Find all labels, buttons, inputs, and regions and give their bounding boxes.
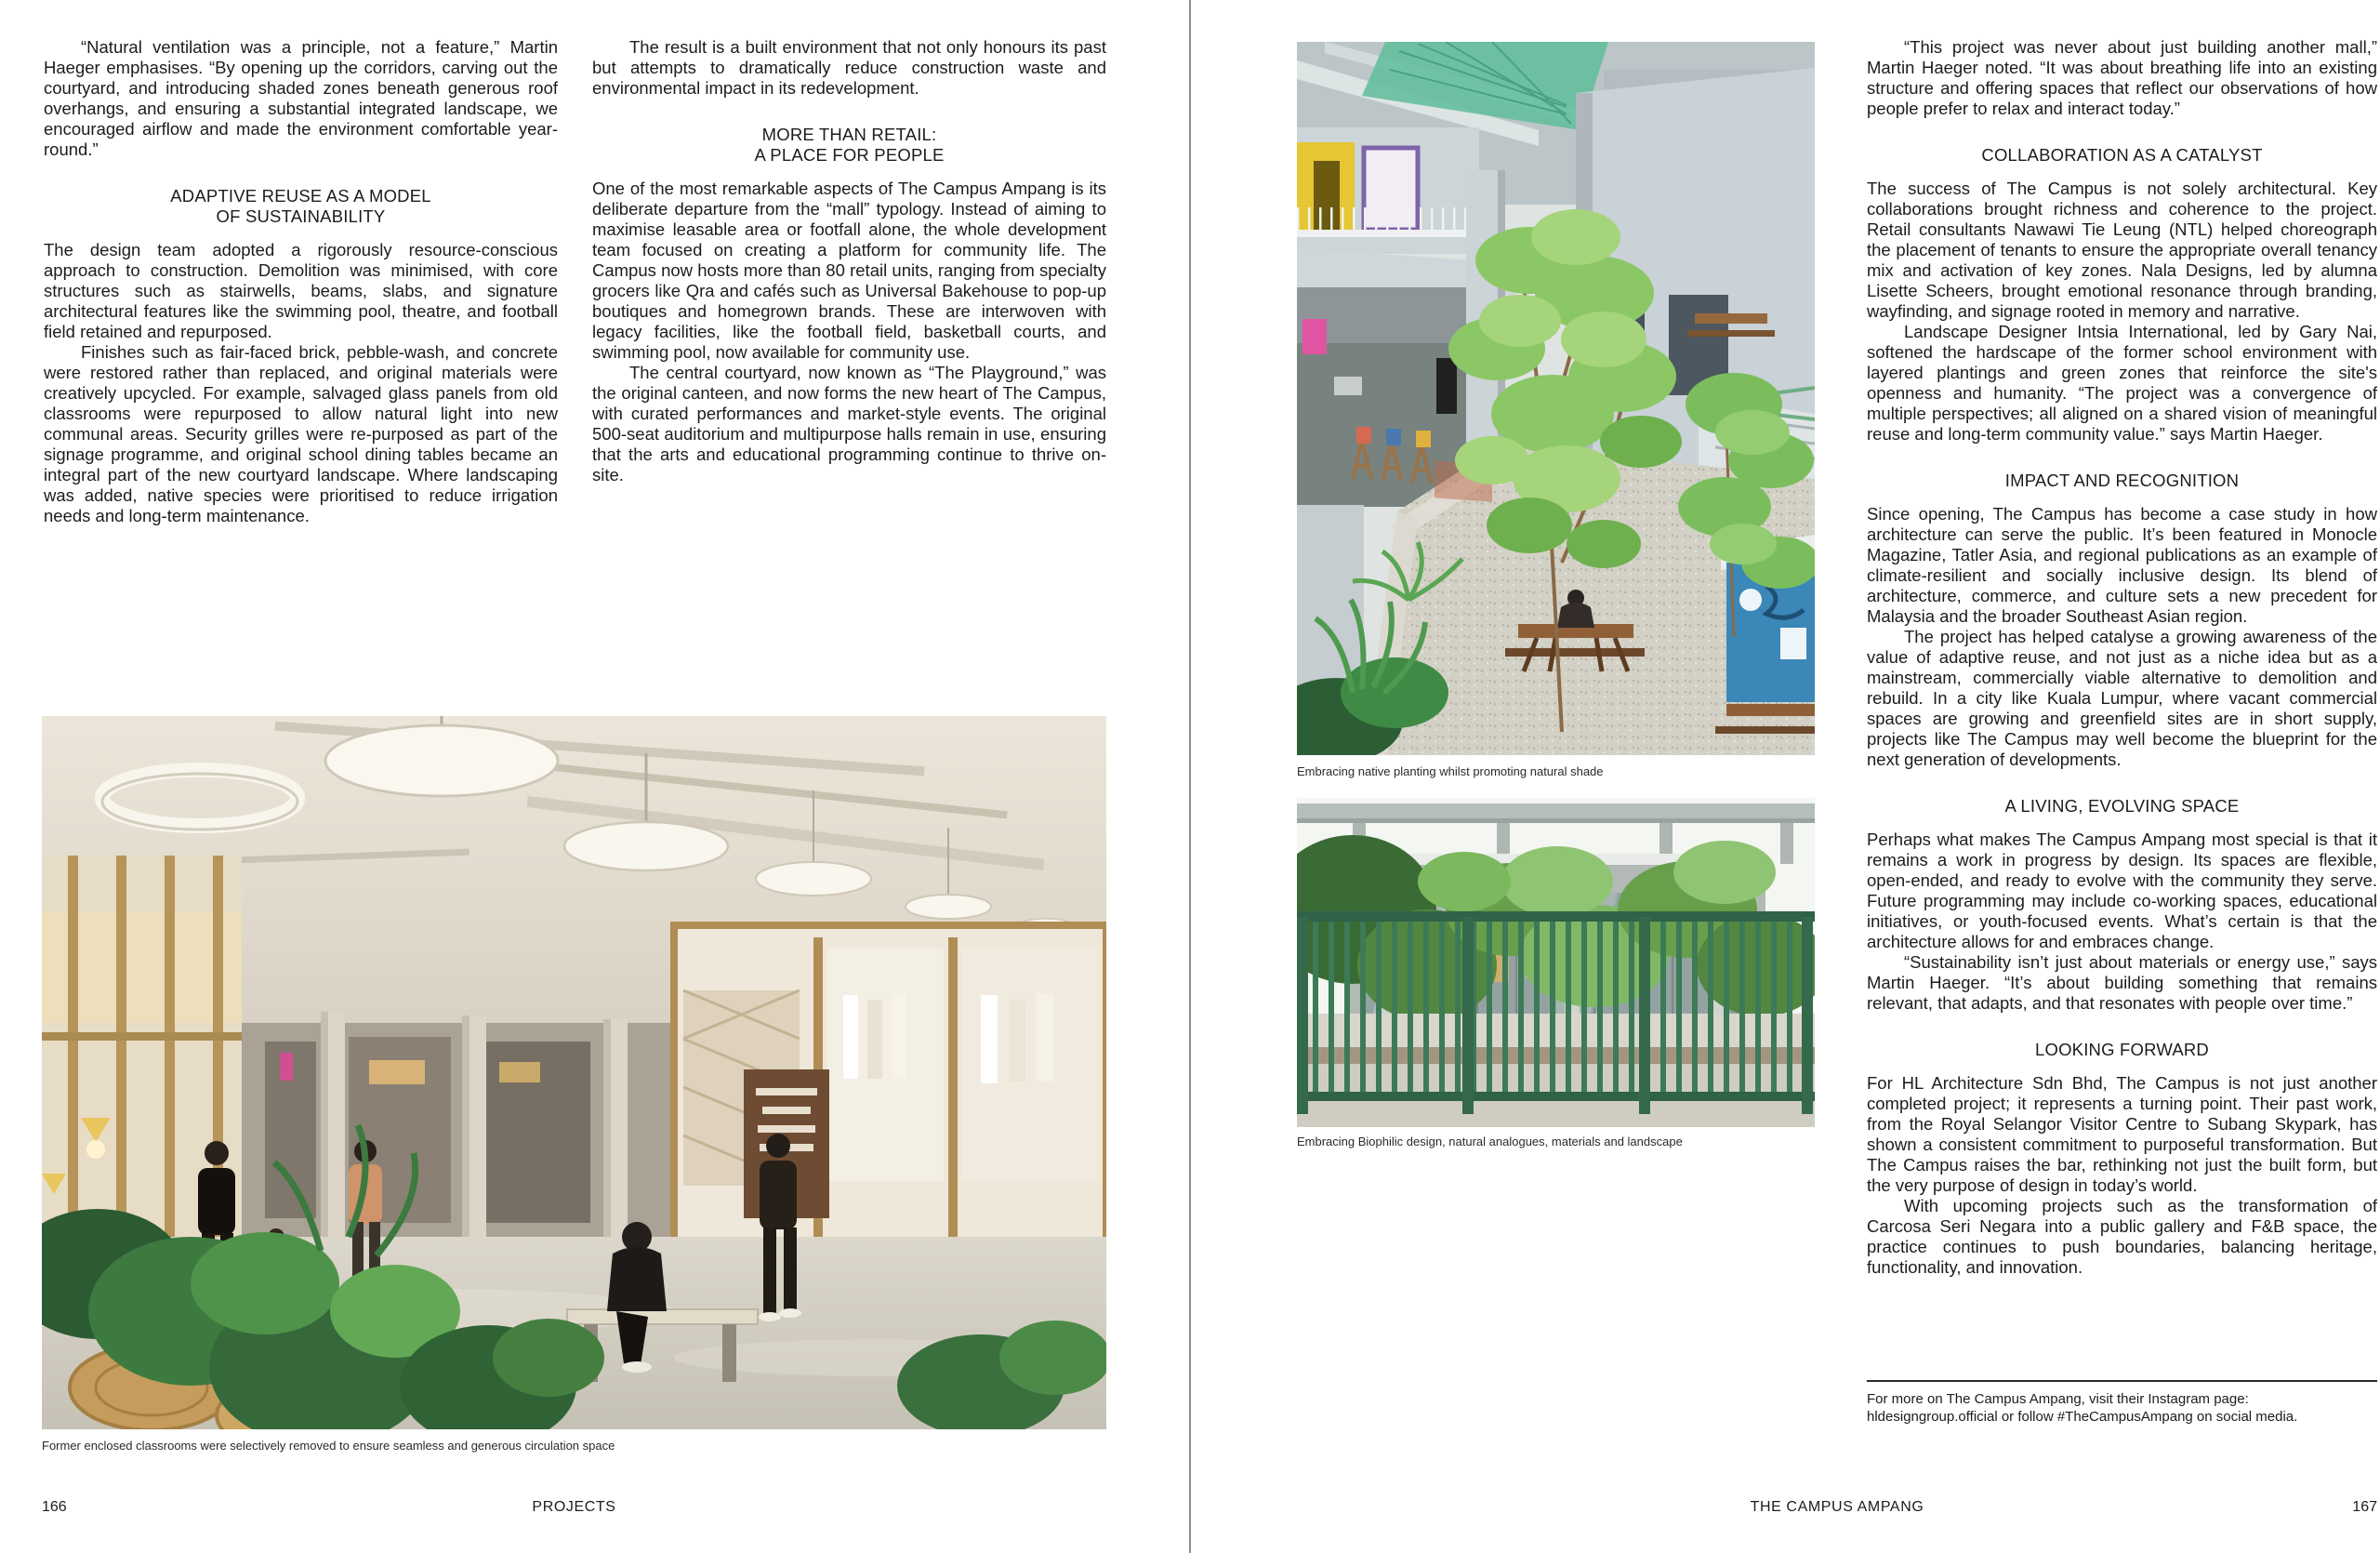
photo-caption-right-1: Embracing native planting whilst promoti… (1297, 764, 1815, 779)
page-gutter-divider (1189, 0, 1191, 1553)
fence-scene (1297, 798, 1815, 1127)
paragraph: The design team adopted a rigorously res… (44, 240, 558, 342)
section-heading-adaptive-reuse: ADAPTIVE REUSE AS A MODEL OF SUSTAINABIL… (44, 186, 558, 227)
paragraph: One of the most remarkable aspects of Th… (592, 179, 1106, 363)
left-page-column-2: The result is a built environment that n… (592, 37, 1106, 485)
paragraph: “Natural ventilation was a principle, no… (44, 37, 558, 160)
right-shopfront (674, 925, 1106, 1260)
section-heading-more-than-retail: MORE THAN RETAIL: A PLACE FOR PEOPLE (592, 125, 1106, 166)
right-page-column: “This project was never about just build… (1867, 37, 2377, 1278)
paragraph: With upcoming projects such as the trans… (1867, 1196, 2377, 1278)
photo-caption-right-2: Embracing Biophilic design, natural anal… (1297, 1135, 1815, 1149)
paragraph: Landscape Designer Intsia International,… (1867, 322, 2377, 445)
photo-caption-left: Former enclosed classrooms were selectiv… (42, 1439, 1106, 1453)
section-heading-collaboration: COLLABORATION AS A CATALYST (1867, 145, 2377, 166)
running-footer-left: PROJECTS (42, 1499, 1106, 1516)
left-page-column-1: “Natural ventilation was a principle, no… (44, 37, 558, 526)
photo-green-fence (1297, 798, 1815, 1127)
page-number-right: 167 (2250, 1499, 2377, 1516)
section-heading-impact: IMPACT AND RECOGNITION (1867, 471, 2377, 491)
paragraph: For HL Architecture Sdn Bhd, The Campus … (1867, 1073, 2377, 1196)
photo-corridor-interior (42, 716, 1106, 1429)
photo-courtyard (1297, 42, 1815, 755)
green-fence (1297, 911, 1815, 1114)
paragraph: The success of The Campus is not solely … (1867, 179, 2377, 322)
courtyard-scene (1297, 42, 1815, 755)
section-heading-living-space: A LIVING, EVOLVING SPACE (1867, 796, 2377, 816)
paragraph: Since opening, The Campus has become a c… (1867, 504, 2377, 627)
running-footer-right: THE CAMPUS AMPANG (1297, 1499, 2377, 1516)
footnote-text: For more on The Campus Ampang, visit the… (1867, 1390, 2377, 1426)
paragraph: Finishes such as fair-faced brick, pebbl… (44, 342, 558, 526)
paragraph: The project has helped catalyse a growin… (1867, 627, 2377, 770)
paragraph: “This project was never about just build… (1867, 37, 2377, 119)
paragraph: Perhaps what makes The Campus Ampang mos… (1867, 830, 2377, 952)
paragraph: The result is a built environment that n… (592, 37, 1106, 99)
paragraph: “Sustainability isn’t just about materia… (1867, 952, 2377, 1014)
footnote-block: For more on The Campus Ampang, visit the… (1867, 1380, 2377, 1426)
magazine-spread: “Natural ventilation was a principle, no… (0, 0, 2380, 1553)
speaker (1436, 358, 1457, 414)
paragraph: The central courtyard, now known as “The… (592, 363, 1106, 485)
corridor-scene (42, 716, 1106, 1429)
upper-walkway (1297, 127, 1479, 254)
section-heading-looking-forward: LOOKING FORWARD (1867, 1040, 2377, 1060)
